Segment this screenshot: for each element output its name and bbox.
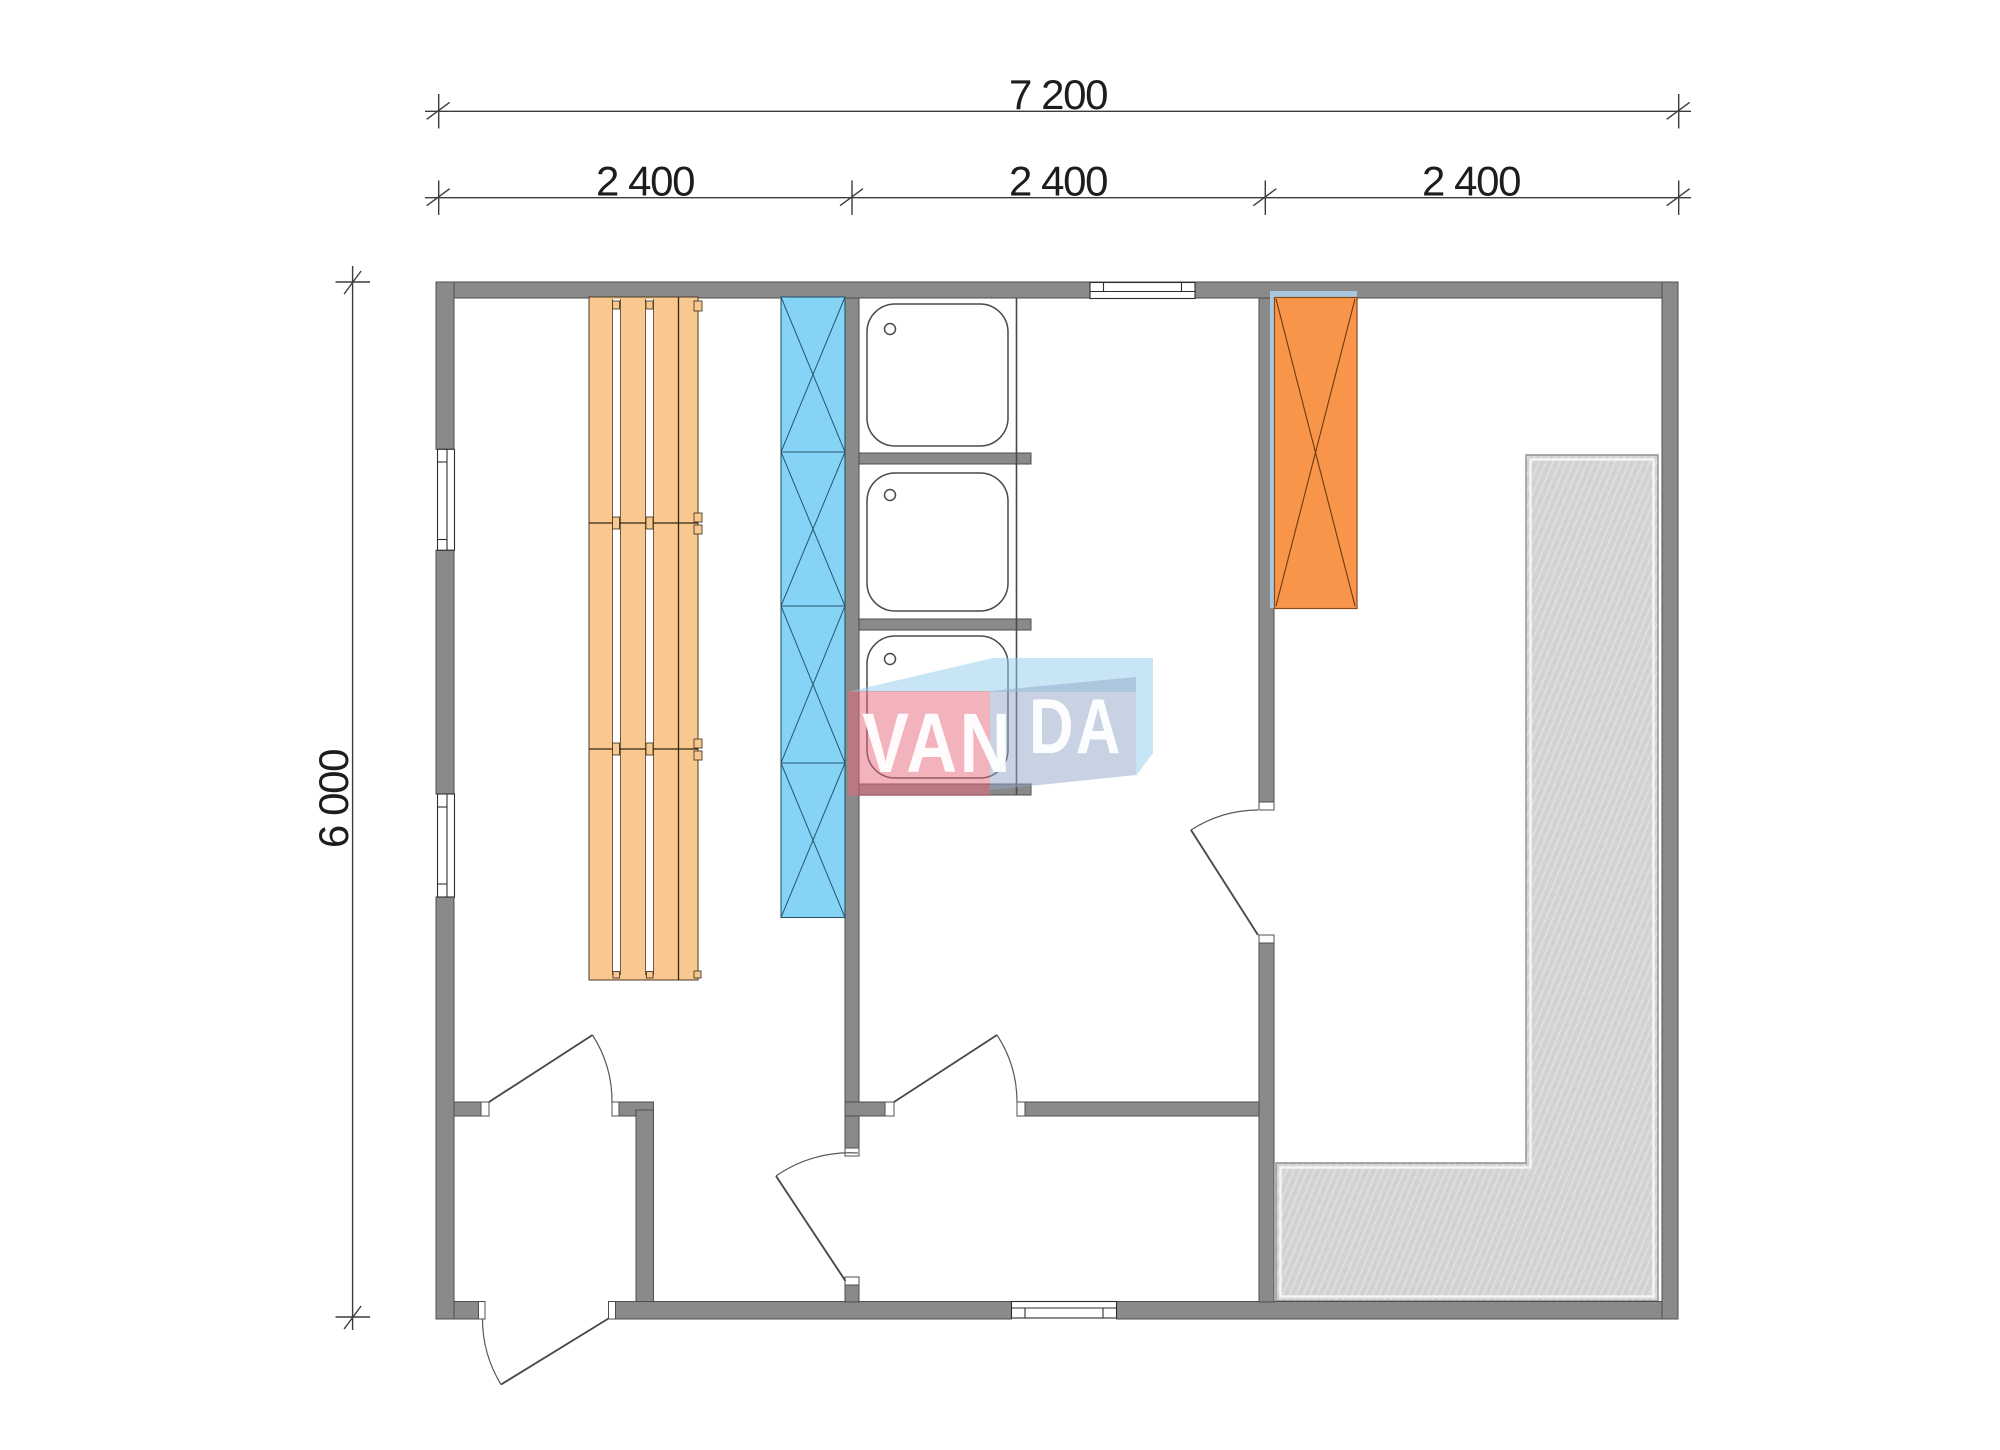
- svg-text:DA: DA: [1029, 682, 1123, 770]
- svg-text:2 400: 2 400: [1422, 158, 1520, 205]
- svg-text:6 000: 6 000: [310, 750, 357, 848]
- svg-text:7 200: 7 200: [1009, 71, 1107, 118]
- svg-text:2 400: 2 400: [1009, 158, 1107, 205]
- svg-text:VAN: VAN: [862, 697, 1013, 790]
- svg-text:2 400: 2 400: [596, 158, 694, 205]
